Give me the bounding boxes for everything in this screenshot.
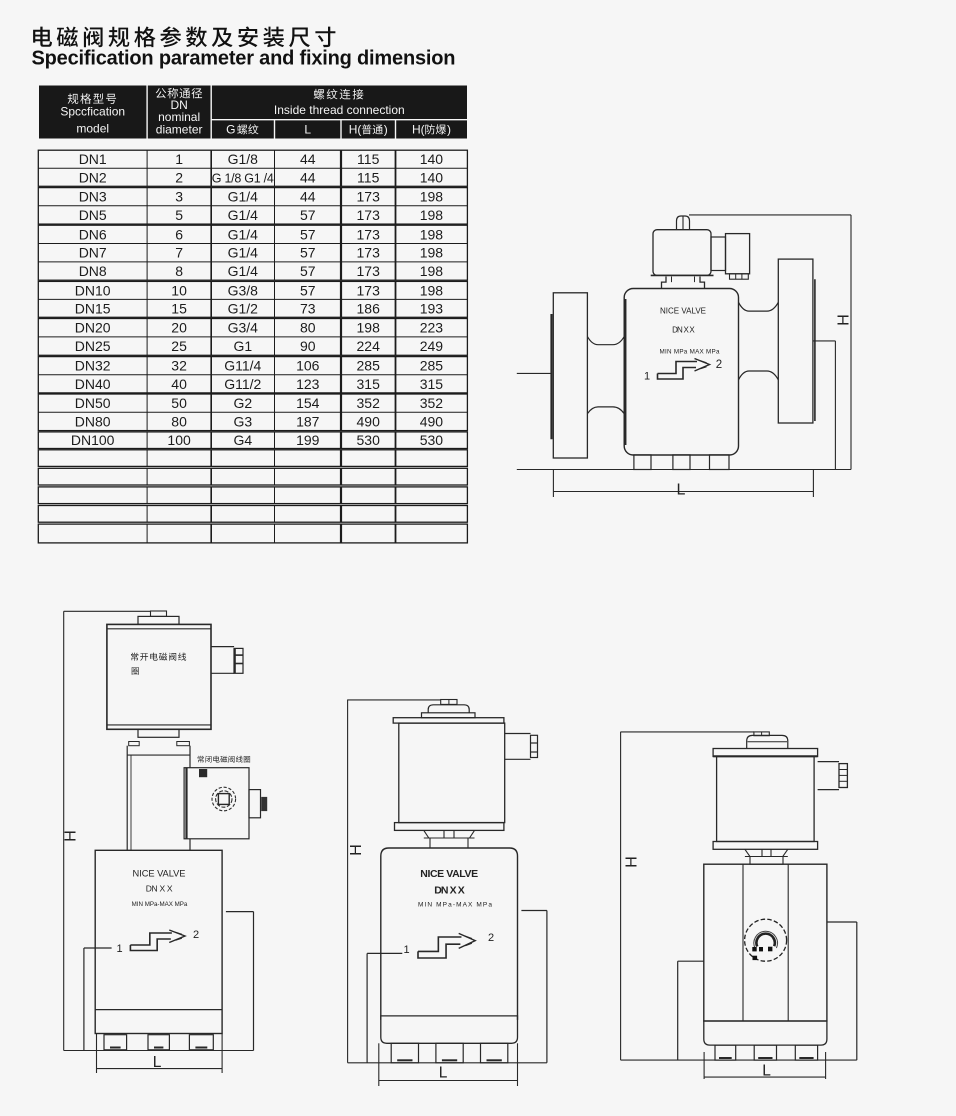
svg-text:G11/2: G11/2 [224, 376, 261, 392]
svg-text:7: 7 [175, 245, 183, 261]
svg-text:DN1: DN1 [79, 151, 107, 167]
svg-text:20: 20 [171, 320, 187, 336]
svg-text:MIN MPa-MAX MPa: MIN MPa-MAX MPa [132, 901, 188, 908]
svg-text:): ) [447, 123, 451, 137]
svg-text:2: 2 [175, 169, 183, 185]
svg-text:187: 187 [296, 414, 320, 430]
svg-text:115: 115 [357, 151, 380, 167]
svg-text:10: 10 [171, 282, 187, 298]
svg-text:DN3: DN3 [79, 189, 107, 205]
svg-text:530: 530 [420, 432, 444, 448]
svg-text:G1/4: G1/4 [228, 189, 259, 205]
svg-text:115: 115 [357, 169, 380, 185]
svg-text:100: 100 [167, 432, 191, 448]
svg-text:315: 315 [357, 376, 381, 392]
svg-text:352: 352 [420, 395, 444, 411]
svg-text:50: 50 [171, 395, 187, 411]
svg-text:106: 106 [296, 358, 320, 374]
svg-text:G3/4: G3/4 [228, 320, 259, 336]
svg-text:H(: H( [412, 123, 425, 137]
svg-text:173: 173 [357, 245, 381, 261]
svg-text:H: H [835, 314, 852, 326]
svg-text:5: 5 [175, 207, 183, 223]
svg-text:DN2: DN2 [79, 169, 107, 185]
svg-text:DN50: DN50 [75, 395, 111, 411]
svg-text:NICE VALVE: NICE VALVE [660, 307, 706, 316]
svg-text:15: 15 [171, 300, 187, 316]
svg-text:123: 123 [296, 376, 320, 392]
svg-text:L: L [762, 1063, 771, 1080]
svg-text:G3/8: G3/8 [228, 282, 259, 298]
svg-text:model: model [76, 122, 109, 136]
svg-text:G1/4: G1/4 [228, 207, 259, 223]
svg-text:40: 40 [171, 376, 187, 392]
svg-text:L: L [439, 1065, 448, 1082]
svg-text:G1: G1 [233, 338, 252, 354]
svg-text:140: 140 [420, 169, 444, 185]
svg-text:Specification parameter and fi: Specification parameter and fixing dimen… [32, 48, 456, 70]
svg-text:198: 198 [420, 263, 444, 279]
svg-text:H: H [623, 856, 640, 868]
svg-text:173: 173 [357, 263, 381, 279]
svg-text:H: H [348, 844, 365, 856]
svg-text:MIN MPa-MAX MPa: MIN MPa-MAX MPa [418, 902, 492, 909]
svg-text:G1/8: G1/8 [228, 151, 259, 167]
svg-text:140: 140 [420, 151, 444, 167]
svg-text:3: 3 [175, 189, 183, 205]
svg-text:1: 1 [403, 944, 409, 956]
svg-text:198: 198 [420, 226, 444, 242]
svg-text:DN32: DN32 [75, 358, 111, 374]
svg-text:490: 490 [420, 414, 444, 430]
svg-text:224: 224 [357, 338, 381, 354]
svg-text:6: 6 [175, 226, 183, 242]
svg-text:90: 90 [300, 338, 316, 354]
svg-text:DN8: DN8 [79, 263, 107, 279]
svg-text:NICE VALVE: NICE VALVE [420, 868, 478, 880]
svg-text:DN X X: DN X X [146, 884, 173, 894]
svg-text:57: 57 [300, 245, 316, 261]
svg-text:57: 57 [300, 207, 316, 223]
svg-text:DN10: DN10 [75, 282, 111, 298]
svg-text:G1/4: G1/4 [228, 263, 259, 279]
svg-text:44: 44 [300, 151, 316, 167]
svg-text:198: 198 [420, 207, 444, 223]
svg-text:Spccfication: Spccfication [60, 105, 125, 119]
svg-text:L: L [153, 1054, 162, 1071]
svg-text:530: 530 [357, 432, 381, 448]
svg-text:57: 57 [300, 282, 316, 298]
svg-text:490: 490 [357, 414, 381, 430]
svg-text:diameter: diameter [156, 123, 203, 137]
svg-text:57: 57 [300, 263, 316, 279]
svg-text:198: 198 [420, 245, 444, 261]
svg-text:G11/4: G11/4 [224, 358, 261, 374]
svg-text:DN40: DN40 [75, 376, 111, 392]
svg-text:2: 2 [488, 932, 494, 944]
svg-text:L: L [677, 482, 686, 499]
svg-text:73: 73 [300, 300, 316, 316]
svg-text:285: 285 [357, 358, 381, 374]
svg-text:173: 173 [357, 189, 381, 205]
svg-text:154: 154 [296, 395, 320, 411]
svg-text:198: 198 [420, 189, 444, 205]
svg-text:1: 1 [175, 151, 183, 167]
svg-text:315: 315 [420, 376, 444, 392]
svg-text:): ) [384, 123, 388, 137]
svg-text:G1/4: G1/4 [228, 226, 259, 242]
svg-text:2: 2 [716, 359, 722, 371]
svg-text:L: L [304, 123, 311, 137]
svg-text:44: 44 [300, 189, 316, 205]
svg-text:285: 285 [420, 358, 444, 374]
svg-text:Inside thread connection: Inside thread connection [274, 103, 405, 117]
svg-text:1: 1 [644, 371, 650, 383]
svg-text:173: 173 [357, 207, 381, 223]
svg-text:198: 198 [357, 320, 381, 336]
svg-text:DN100: DN100 [71, 432, 115, 448]
svg-text:223: 223 [420, 320, 444, 336]
svg-text:173: 173 [357, 226, 381, 242]
svg-text:DN25: DN25 [75, 338, 111, 354]
svg-text:DN20: DN20 [75, 320, 111, 336]
svg-text:G1/2: G1/2 [228, 300, 259, 316]
svg-text:G4: G4 [233, 432, 252, 448]
svg-text:DN6: DN6 [79, 226, 107, 242]
svg-text:G: G [226, 123, 235, 137]
svg-text:G3: G3 [233, 414, 252, 430]
svg-text:44: 44 [300, 169, 316, 185]
svg-text:352: 352 [357, 395, 381, 411]
svg-text:80: 80 [171, 414, 187, 430]
svg-text:57: 57 [300, 226, 316, 242]
svg-text:G1/4: G1/4 [228, 245, 259, 261]
svg-text:198: 198 [420, 282, 444, 298]
svg-text:DN X X: DN X X [672, 326, 695, 335]
svg-text:NICE VALVE: NICE VALVE [133, 869, 186, 879]
svg-text:32: 32 [171, 358, 187, 374]
svg-text:25: 25 [171, 338, 187, 354]
svg-text:186: 186 [357, 300, 381, 316]
svg-text:2: 2 [193, 929, 199, 941]
svg-text:249: 249 [420, 338, 444, 354]
svg-text:173: 173 [357, 282, 381, 298]
svg-text:8: 8 [175, 263, 183, 279]
svg-text:80: 80 [300, 320, 316, 336]
svg-text:H: H [62, 830, 79, 842]
svg-text:193: 193 [420, 300, 444, 316]
svg-text:199: 199 [296, 432, 320, 448]
svg-text:DN X X: DN X X [434, 885, 465, 897]
svg-text:1: 1 [116, 943, 122, 955]
svg-text:G 1/8 G1 /4: G 1/8 G1 /4 [212, 171, 274, 185]
svg-text:DN5: DN5 [79, 207, 107, 223]
svg-text:MIN MPa MAX MPa: MIN MPa MAX MPa [660, 349, 720, 356]
svg-text:DN7: DN7 [79, 245, 107, 261]
svg-text:G2: G2 [233, 395, 252, 411]
svg-text:DN80: DN80 [75, 414, 111, 430]
svg-text:DN15: DN15 [75, 300, 111, 316]
svg-text:H(: H( [349, 123, 362, 137]
